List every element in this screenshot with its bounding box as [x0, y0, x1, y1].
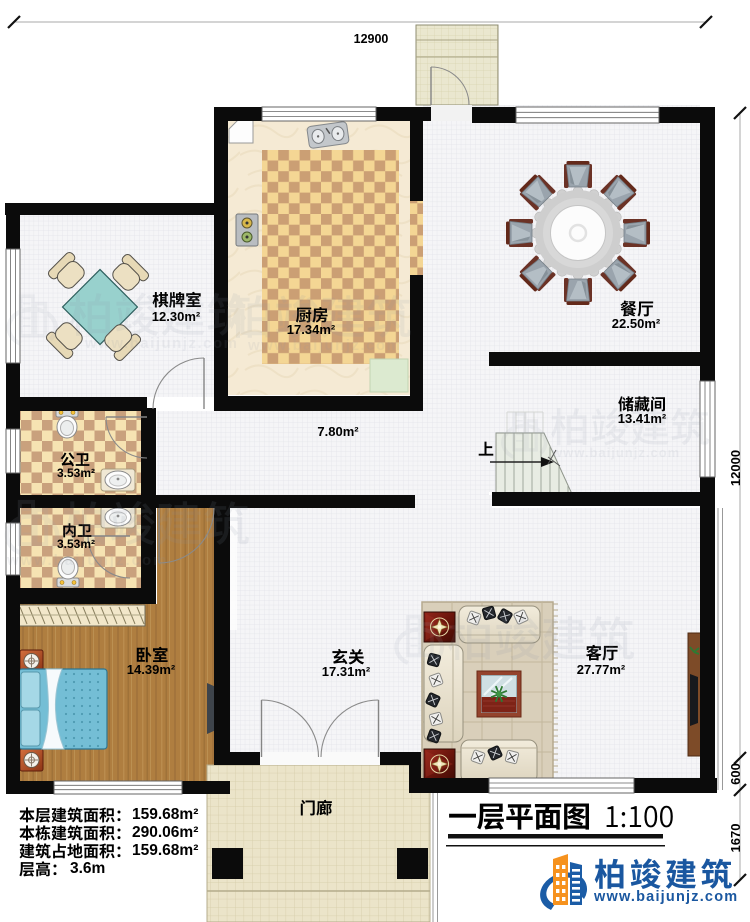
svg-text:www.baijunjz.com: www.baijunjz.com: [247, 337, 401, 354]
svg-text:www.baijunjz.com: www.baijunjz.com: [6, 552, 168, 569]
svg-text:www.baijunjz.com: www.baijunjz.com: [551, 445, 680, 460]
svg-text:www.baijunjz.com: www.baijunjz.com: [84, 335, 238, 352]
